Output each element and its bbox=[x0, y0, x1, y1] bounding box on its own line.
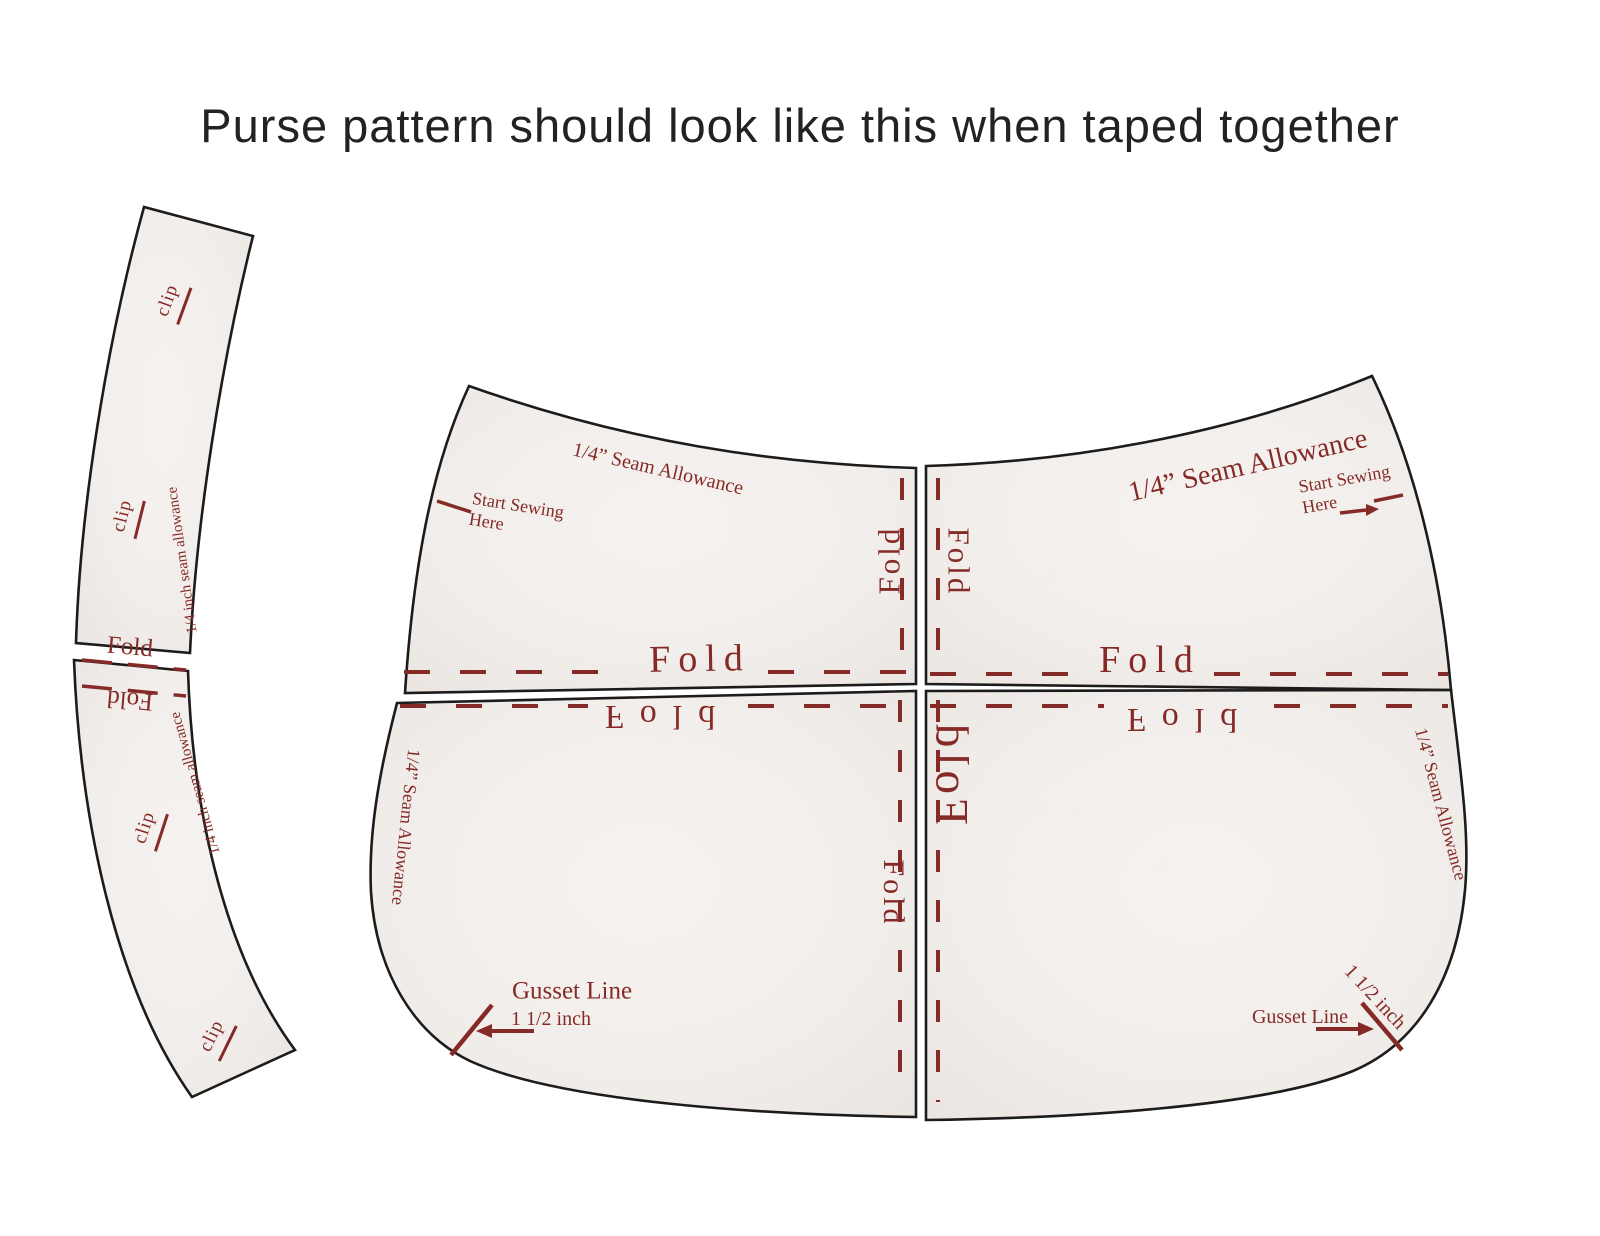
fold-label-top-right: Fold bbox=[1099, 641, 1201, 679]
purse-pattern-diagram: Purse pattern should look like this when… bbox=[0, 0, 1600, 1236]
pattern-shapes-canvas bbox=[0, 0, 1600, 1236]
fold-label-center-top-left: Fold bbox=[874, 526, 905, 595]
purse-bottom-right-piece-shape bbox=[926, 690, 1466, 1120]
gusset-measurement-left: 1 1/2 inch bbox=[511, 1009, 591, 1029]
fold-label-top-left: Fold bbox=[649, 639, 751, 679]
strip-top-piece-shape bbox=[76, 207, 253, 653]
fold-label-center-bottom-left: Fold bbox=[878, 859, 908, 926]
fold-label-bottom-left: Fold bbox=[605, 699, 731, 733]
fold-label-center-top-right: Fold bbox=[944, 528, 975, 597]
fold-label-bottom-right: Fold bbox=[1127, 702, 1253, 736]
gusset-line-label-right: Gusset Line bbox=[1252, 1007, 1348, 1027]
gusset-line-label-left: Gusset Line bbox=[512, 979, 632, 1004]
strip-fold-label-top: Fold bbox=[106, 633, 154, 662]
strip-fold-label-bottom: Fold bbox=[106, 686, 154, 715]
fold-label-center-bottom-right: Fold bbox=[928, 719, 975, 825]
